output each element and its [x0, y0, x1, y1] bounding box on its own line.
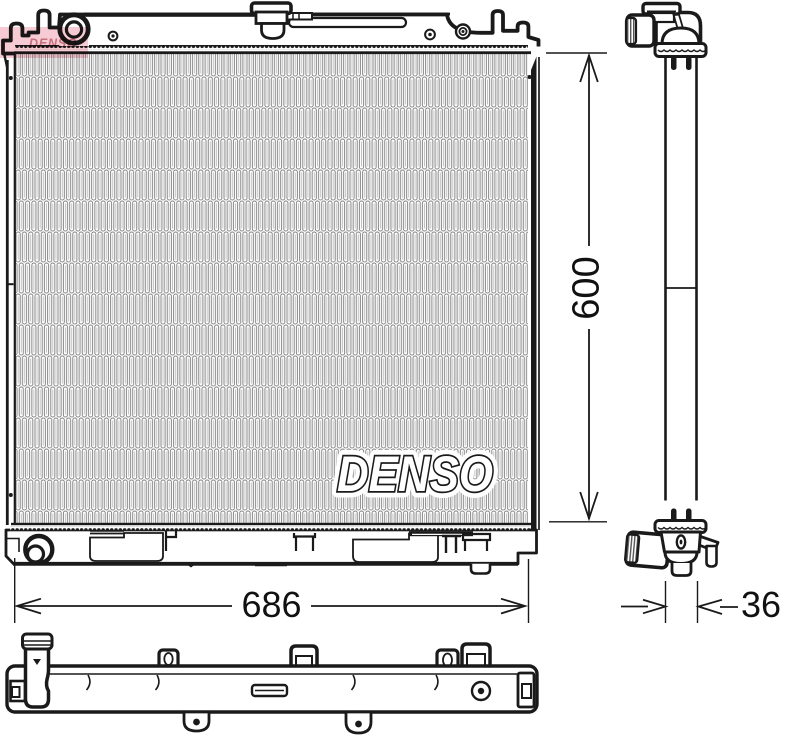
svg-text:686: 686	[241, 584, 301, 625]
svg-text:DENSO: DENSO	[337, 446, 493, 502]
svg-text:36: 36	[741, 584, 781, 625]
svg-text:DENSO: DENSO	[29, 37, 77, 51]
svg-text:600: 600	[566, 256, 608, 319]
